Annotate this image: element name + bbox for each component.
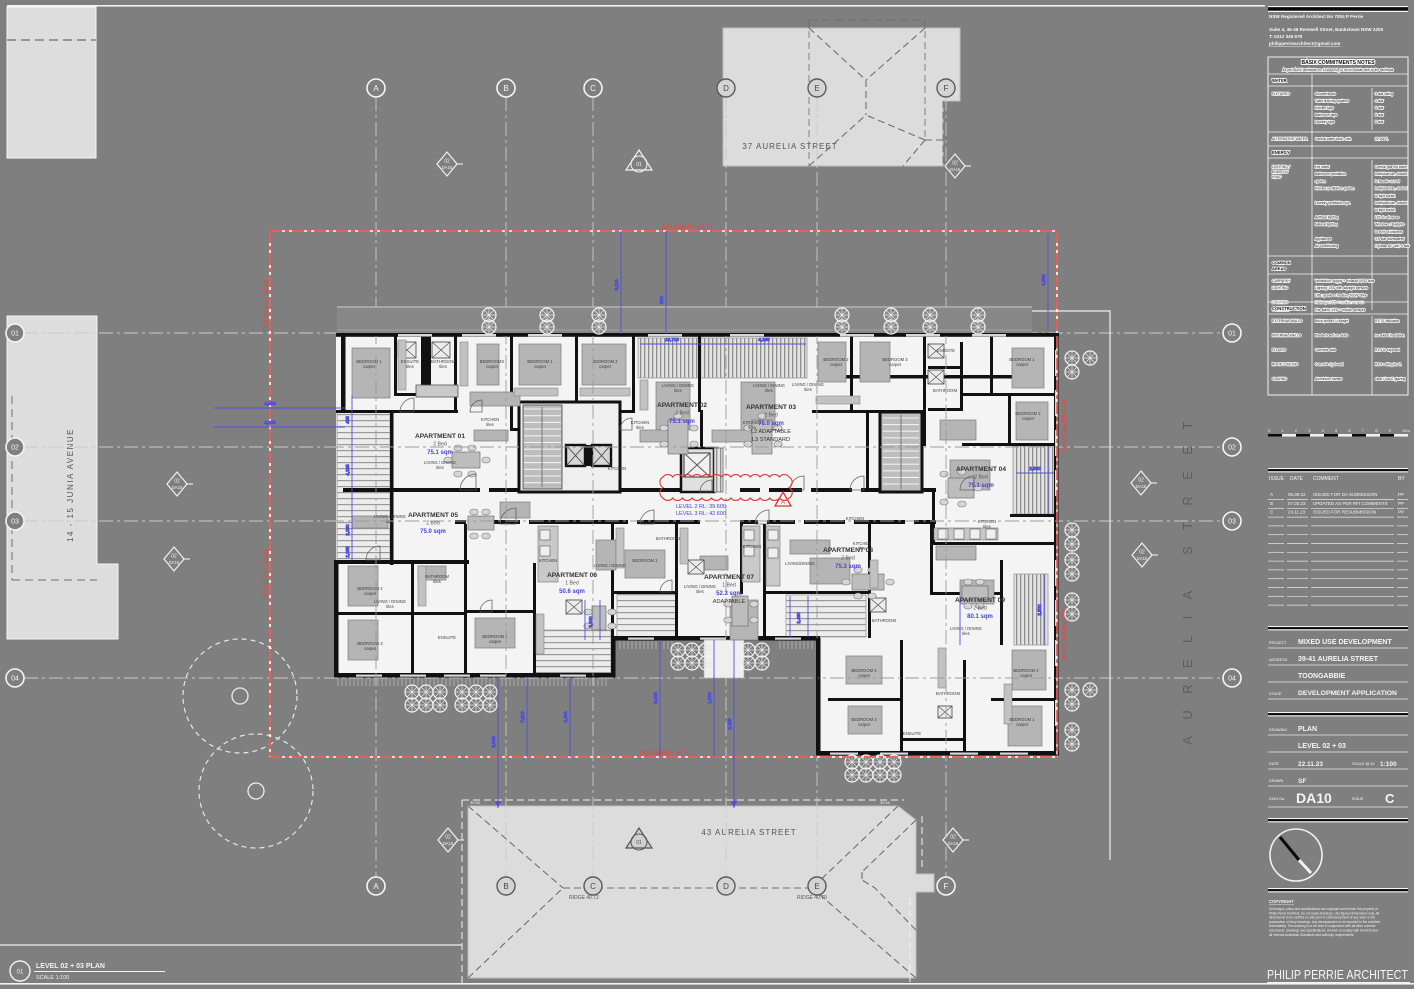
svg-text:tiles: tiles xyxy=(436,465,443,470)
svg-text:carpet: carpet xyxy=(1020,673,1032,678)
svg-text:37 AURELIA STREET: 37 AURELIA STREET xyxy=(742,142,837,151)
svg-text:500: 500 xyxy=(659,296,664,304)
svg-text:APARTMENT 09: APARTMENT 09 xyxy=(955,597,1005,604)
svg-text:2 Bed: 2 Bed xyxy=(974,475,988,481)
svg-text:Ventilation: supply + exhaust,: Ventilation: supply + exhaust, VSD fans xyxy=(1315,279,1375,283)
svg-text:2,420: 2,420 xyxy=(727,718,732,730)
svg-text:Bathroom taps: Bathroom taps xyxy=(1315,113,1337,117)
svg-text:D: D xyxy=(723,882,729,891)
svg-text:E: E xyxy=(814,882,819,891)
svg-text:PROJECT: PROJECT xyxy=(1269,641,1287,645)
svg-text:carpet: carpet xyxy=(599,364,611,369)
svg-text:75.0 sqm: 75.0 sqm xyxy=(420,529,446,535)
svg-text:LED to all areas: LED to all areas xyxy=(1375,215,1399,219)
svg-text:4,295: 4,295 xyxy=(345,464,350,476)
svg-text:APARTMENT 07: APARTMENT 07 xyxy=(704,574,754,581)
svg-text:3,300: 3,300 xyxy=(588,616,593,628)
svg-text:RIDGE 40.70: RIDGE 40.70 xyxy=(797,895,827,901)
svg-text:Lighting: LED with daylight se: Lighting: LED with daylight sensors xyxy=(1315,286,1368,290)
svg-text:BOUNDARY 30.48: BOUNDARY 30.48 xyxy=(1060,400,1066,451)
svg-text:philipperriearchitect@gmail.co: philipperriearchitect@gmail.com xyxy=(1269,41,1340,46)
svg-text:4 star: 4 star xyxy=(1375,99,1384,103)
svg-text:Concrete slab: Concrete slab xyxy=(1315,348,1336,352)
svg-text:DATE: DATE xyxy=(1290,476,1304,482)
svg-text:clear / low-E glazing: clear / low-E glazing xyxy=(1375,377,1405,381)
svg-text:KITCHEN: KITCHEN xyxy=(743,544,761,549)
svg-text:5,600: 5,600 xyxy=(491,736,496,748)
svg-text:Hot water: Hot water xyxy=(1315,165,1330,169)
svg-text:A: A xyxy=(1270,492,1273,497)
svg-text:carpet: carpet xyxy=(858,722,870,727)
svg-text:Showerheads: Showerheads xyxy=(1315,92,1336,96)
svg-text:3 star rating: 3 star rating xyxy=(1375,92,1393,96)
svg-text:DRAWING: DRAWING xyxy=(1269,728,1287,732)
svg-text:A: A xyxy=(373,882,379,891)
svg-text:tiles: tiles xyxy=(804,387,811,392)
svg-text:ISSUE: ISSUE xyxy=(1269,476,1285,482)
svg-text:B: B xyxy=(1270,501,1273,506)
svg-text:Laundry taps: Laundry taps xyxy=(1315,120,1335,124)
svg-text:80.1 sqm: 80.1 sqm xyxy=(967,614,993,620)
svg-text:75.3 sqm: 75.3 sqm xyxy=(835,564,861,570)
svg-text:Lifts: gearless traction, VVVF: Lifts: gearless traction, VVVF drive xyxy=(1315,293,1367,297)
svg-text:01: 01 xyxy=(17,970,24,976)
svg-text:ADAPTABLE: ADAPTABLE xyxy=(713,599,746,605)
svg-text:DATE: DATE xyxy=(1269,762,1279,766)
svg-text:FIXTURES: FIXTURES xyxy=(1272,92,1290,96)
svg-text:Air conditioning: Air conditioning xyxy=(1315,244,1338,248)
svg-text:3.5 star dishwasher: 3.5 star dishwasher xyxy=(1375,237,1405,241)
svg-text:B: B xyxy=(503,84,508,93)
svg-text:01: 01 xyxy=(1228,331,1236,338)
svg-text:2,285: 2,285 xyxy=(345,546,350,558)
svg-text:76.0 sqm: 76.0 sqm xyxy=(758,421,784,427)
svg-text:A: A xyxy=(373,84,379,93)
svg-text:04: 04 xyxy=(1228,676,1236,683)
svg-text:02: 02 xyxy=(1228,445,1236,452)
svg-text:AURELIA STREET: AURELIA STREET xyxy=(1180,405,1195,744)
svg-text:75.1 sqm: 75.1 sqm xyxy=(427,450,453,456)
svg-text:FLOORS: FLOORS xyxy=(1272,348,1287,352)
svg-text:COMMON: COMMON xyxy=(1272,260,1291,265)
svg-text:tiles: tiles xyxy=(386,604,393,609)
svg-text:01: 01 xyxy=(636,162,642,168)
svg-text:NSW Registered Architect No 70: NSW Registered Architect No 7004 P Perri… xyxy=(1269,14,1364,19)
svg-text:APARTMENT 06: APARTMENT 06 xyxy=(547,572,597,579)
svg-text:BATHROOM: BATHROOM xyxy=(656,536,680,541)
svg-text:22.11.23: 22.11.23 xyxy=(1298,761,1323,768)
svg-text:AREAS: AREAS xyxy=(1272,266,1286,271)
svg-text:ADDRESS: ADDRESS xyxy=(1269,658,1288,662)
svg-text:LIGHTING /: LIGHTING / xyxy=(1272,165,1290,169)
svg-text:02: 02 xyxy=(11,445,19,452)
svg-text:4,606: 4,606 xyxy=(264,401,276,406)
svg-text:Suite 4, 46-48 Restwell Street: Suite 4, 46-48 Restwell Street, Bankstow… xyxy=(1269,27,1384,32)
svg-text:PP: PP xyxy=(1398,492,1404,497)
svg-text:carpet: carpet xyxy=(1016,362,1028,367)
svg-text:LEVEL 2 RL: 39.600: LEVEL 2 RL: 39.600 xyxy=(676,504,726,510)
svg-text:39-41 AURELIA STREET: 39-41 AURELIA STREET xyxy=(1298,656,1379,663)
svg-text:1,000: 1,000 xyxy=(707,692,712,704)
svg-text:tiles: tiles xyxy=(386,519,393,524)
svg-text:E: E xyxy=(814,84,819,93)
svg-text:APARTMENT 03: APARTMENT 03 xyxy=(746,404,796,411)
svg-text:RIDGE 40.72: RIDGE 40.72 xyxy=(569,895,599,901)
svg-text:Central gas hot water: Central gas hot water xyxy=(1375,165,1408,169)
svg-text:5 star: 5 star xyxy=(1375,120,1384,124)
svg-text:ISSUED FOR RESUBMISSION: ISSUED FOR RESUBMISSION xyxy=(1313,510,1376,515)
svg-text:GLAZING: GLAZING xyxy=(1272,377,1287,381)
svg-text:ENERGY: ENERGY xyxy=(1272,150,1290,155)
svg-text:carpet: carpet xyxy=(889,362,901,367)
svg-text:43 AURELIA STREET: 43 AURELIA STREET xyxy=(701,828,796,837)
svg-text:SCALE 1:100: SCALE 1:100 xyxy=(36,975,69,981)
svg-text:1 Bed: 1 Bed xyxy=(565,581,579,587)
svg-text:carpet: carpet xyxy=(364,646,376,651)
svg-text:Individual fan, ducted: Individual fan, ducted xyxy=(1375,201,1407,205)
svg-text:APARTMENT 05: APARTMENT 05 xyxy=(408,512,458,519)
svg-text:D: D xyxy=(723,84,729,93)
svg-text:01: 01 xyxy=(636,840,642,846)
svg-text:MIXED USE DEVELOPMENT: MIXED USE DEVELOPMENT xyxy=(1298,639,1392,646)
svg-text:10m: 10m xyxy=(1402,428,1410,433)
svg-text:APARTMENT 04: APARTMENT 04 xyxy=(956,466,1006,473)
svg-text:07.03.23: 07.03.23 xyxy=(1288,501,1306,506)
svg-text:R3.0 ceiling insul.: R3.0 ceiling insul. xyxy=(1375,363,1402,367)
svg-text:T: 0412 345 678: T: 0412 345 678 xyxy=(1269,34,1303,39)
svg-text:to light switch: to light switch xyxy=(1375,194,1395,198)
svg-text:PHILIP PERRIE ARCHITECT: PHILIP PERRIE ARCHITECT xyxy=(1267,967,1408,982)
svg-text:carpet: carpet xyxy=(489,639,501,644)
svg-text:PP: PP xyxy=(1398,510,1404,515)
svg-text:KITCHEN: KITCHEN xyxy=(539,558,557,563)
svg-text:BATHROOM: BATHROOM xyxy=(936,691,960,696)
svg-text:BATHROOM: BATHROOM xyxy=(933,388,957,393)
svg-text:ISSUED FOR DA SUBMISSION: ISSUED FOR DA SUBMISSION xyxy=(1313,492,1377,497)
svg-text:all relevant Australian Standa: all relevant Australian Standards and au… xyxy=(1269,933,1355,937)
svg-text:1 Bed: 1 Bed xyxy=(722,583,736,589)
svg-text:CARPARK /: CARPARK / xyxy=(1272,279,1290,283)
svg-text:455: 455 xyxy=(345,416,350,424)
svg-text:BOUNDARY 30.48: BOUNDARY 30.48 xyxy=(1060,610,1066,661)
svg-text:Laundry ventilation sys.: Laundry ventilation sys. xyxy=(1315,201,1350,205)
svg-text:Central water tank - rain: Central water tank - rain xyxy=(1315,137,1351,141)
svg-text:14 - 15 JUNIA AVENUE: 14 - 15 JUNIA AVENUE xyxy=(66,428,75,542)
svg-text:TOONGABBIE: TOONGABBIE xyxy=(1298,673,1346,680)
svg-text:tiles: tiles xyxy=(486,422,493,427)
svg-text:Individual fan, ducted: Individual fan, ducted xyxy=(1375,187,1407,191)
svg-text:52.3 sqm: 52.3 sqm xyxy=(716,591,742,597)
svg-text:LIVING/DINING: LIVING/DINING xyxy=(785,561,815,566)
svg-text:COMMENT: COMMENT xyxy=(1313,476,1339,482)
svg-text:DA10: DA10 xyxy=(1296,790,1332,806)
svg-text:39.60: 39.60 xyxy=(470,800,481,805)
svg-text:Natural lighting: Natural lighting xyxy=(1315,223,1338,227)
svg-text:DEVELOPMENT APPLICATION: DEVELOPMENT APPLICATION xyxy=(1298,690,1397,697)
svg-text:2,460: 2,460 xyxy=(796,612,801,624)
svg-text:Windows / skylights: Windows / skylights xyxy=(1375,223,1405,227)
svg-text:APARTMENT 08: APARTMENT 08 xyxy=(823,547,873,554)
svg-text:75.1 sqm: 75.1 sqm xyxy=(968,483,994,489)
svg-text:tiles: tiles xyxy=(696,589,703,594)
svg-text:LIGHTING: LIGHTING xyxy=(1272,301,1288,305)
svg-text:4,400: 4,400 xyxy=(563,711,568,723)
svg-text:BY: BY xyxy=(1398,476,1405,482)
svg-text:carpet: carpet xyxy=(486,364,498,369)
svg-text:50.6 sqm: 50.6 sqm xyxy=(559,589,585,595)
svg-text:BASIX COMMITMENTS NOTES: BASIX COMMITMENTS NOTES xyxy=(1301,60,1375,66)
svg-text:DWG No.: DWG No. xyxy=(1269,797,1285,801)
svg-text:03: 03 xyxy=(11,519,19,526)
svg-text:Concrete / p.board: Concrete / p.board xyxy=(1315,363,1343,367)
svg-text:2,500: 2,500 xyxy=(1037,604,1042,616)
svg-text:carpet: carpet xyxy=(1022,416,1034,421)
svg-text:Brick veneer / l.weight: Brick veneer / l.weight xyxy=(1315,319,1348,323)
svg-text:BOUNDARY 30.48: BOUNDARY 30.48 xyxy=(264,549,270,600)
svg-text:L2 ADAPTABLE: L2 ADAPTABLE xyxy=(751,429,791,435)
svg-text:BOUNDARY 45.72: BOUNDARY 45.72 xyxy=(662,225,713,231)
svg-text:INTERNAL WALLS: INTERNAL WALLS xyxy=(1272,334,1302,338)
svg-text:Hallways: LED + motion sensors: Hallways: LED + motion sensors xyxy=(1315,301,1364,305)
svg-text:Appliances: Appliances xyxy=(1315,237,1332,241)
svg-text:C: C xyxy=(1385,791,1395,806)
svg-text:LEVEL 02 + 03 PLAN: LEVEL 02 + 03 PLAN xyxy=(36,963,105,970)
svg-text:ROOF / CEILING: ROOF / CEILING xyxy=(1272,363,1299,367)
svg-text:39.60: 39.60 xyxy=(880,800,891,805)
svg-text:2 Bed: 2 Bed xyxy=(841,556,855,562)
svg-text:KITCHEN: KITCHEN xyxy=(846,516,864,521)
svg-text:10,710: 10,710 xyxy=(665,337,679,342)
svg-text:UPDATED AS PER RFI COMMENTS: UPDATED AS PER RFI COMMENTS xyxy=(1313,501,1388,506)
svg-text:system: system xyxy=(1315,179,1326,183)
svg-text:2 Bed: 2 Bed xyxy=(764,413,778,419)
svg-text:5 star: 5 star xyxy=(1375,113,1384,117)
svg-text:carpet: carpet xyxy=(1016,722,1028,727)
svg-text:SF: SF xyxy=(1298,778,1306,785)
svg-text:Kitchen ventilation system: Kitchen ventilation system xyxy=(1315,187,1354,191)
svg-text:PP: PP xyxy=(1398,501,1404,506)
svg-text:LEVEL 3 RL: 42.600: LEVEL 3 RL: 42.600 xyxy=(676,511,726,517)
svg-text:Fire stairs: LED + motion sens: Fire stairs: LED + motion sensors xyxy=(1315,308,1366,312)
svg-text:no added insulation: no added insulation xyxy=(1375,334,1405,338)
svg-text:BOUNDARY 30.48: BOUNDARY 30.48 xyxy=(264,279,270,330)
svg-text:Plasterboard on studs: Plasterboard on studs xyxy=(1315,334,1348,338)
svg-text:01: 01 xyxy=(11,331,19,338)
svg-text:APARTMENT 02: APARTMENT 02 xyxy=(657,402,707,409)
svg-text:75.1 sqm: 75.1 sqm xyxy=(669,419,695,425)
svg-text:A: A xyxy=(781,500,785,506)
svg-text:to light switch: to light switch xyxy=(1375,208,1395,212)
svg-text:HVAC: HVAC xyxy=(1272,175,1282,179)
svg-text:WATER: WATER xyxy=(1272,78,1287,83)
svg-text:ENERGY /: ENERGY / xyxy=(1272,170,1288,174)
svg-text:1,500: 1,500 xyxy=(1041,274,1046,286)
svg-text:tiles: tiles xyxy=(439,364,446,369)
svg-text:CONSTRUCTION: CONSTRUCTION xyxy=(1272,306,1306,311)
svg-text:tiles: tiles xyxy=(983,524,990,529)
svg-text:F: F xyxy=(944,84,949,93)
svg-text:SCALE @ A1: SCALE @ A1 xyxy=(1352,762,1375,766)
svg-text:24.11.23: 24.11.23 xyxy=(1288,510,1306,515)
svg-text:ENSUITE: ENSUITE xyxy=(903,731,921,736)
svg-text:C: C xyxy=(590,882,596,891)
svg-text:ISSUE: ISSUE xyxy=(1352,797,1364,801)
svg-text:carpet: carpet xyxy=(534,364,546,369)
svg-text:Bathroom ventilation: Bathroom ventilation xyxy=(1315,172,1346,176)
svg-text:R1.70 insulation: R1.70 insulation xyxy=(1375,319,1399,323)
svg-text:C: C xyxy=(590,84,596,93)
svg-text:ENSUITE: ENSUITE xyxy=(438,635,456,640)
svg-text:EXTERNAL WALLS: EXTERNAL WALLS xyxy=(1272,319,1303,323)
svg-text:3,110: 3,110 xyxy=(614,279,619,290)
svg-text:STAGE: STAGE xyxy=(1269,692,1282,696)
svg-text:LEVEL 02 + 03: LEVEL 02 + 03 xyxy=(1298,743,1346,750)
svg-text:R1.0 to exposed: R1.0 to exposed xyxy=(1375,348,1400,352)
svg-text:1:100: 1:100 xyxy=(1380,761,1397,768)
svg-text:20,000 L: 20,000 L xyxy=(1375,137,1388,141)
svg-text:tiles: tiles xyxy=(765,388,772,393)
svg-text:Toilet flushing systems: Toilet flushing systems xyxy=(1315,99,1349,103)
svg-text:9,000: 9,000 xyxy=(653,692,658,704)
svg-text:APARTMENT 01: APARTMENT 01 xyxy=(415,433,465,440)
svg-text:tiles: tiles xyxy=(406,364,413,369)
svg-text:to facade or roof: to facade or roof xyxy=(1375,179,1400,183)
svg-text:COPYRIGHT: COPYRIGHT xyxy=(1269,899,1294,904)
svg-text:PLAN: PLAN xyxy=(1298,726,1317,733)
svg-text:Individual fan, ducted: Individual fan, ducted xyxy=(1375,172,1407,176)
svg-text:1-phase AC unit; 4 star: 1-phase AC unit; 4 star xyxy=(1375,244,1410,248)
svg-text:5 star: 5 star xyxy=(1375,106,1384,110)
svg-text:carpet: carpet xyxy=(364,591,376,596)
svg-text:B: B xyxy=(503,882,508,891)
svg-text:tiles: tiles xyxy=(433,579,440,584)
svg-text:Kitchen taps: Kitchen taps xyxy=(1315,106,1334,110)
svg-text:As per BASIX certificate no. 1: As per BASIX certificate no. 1245632M_03… xyxy=(1282,68,1393,72)
svg-text:ALTERNATIVE WATER: ALTERNATIVE WATER xyxy=(1272,137,1308,141)
svg-text:2,280: 2,280 xyxy=(345,524,350,536)
svg-text:04: 04 xyxy=(11,676,19,683)
svg-text:BATHROOM: BATHROOM xyxy=(872,618,896,623)
svg-text:7,600: 7,600 xyxy=(520,711,525,723)
svg-text:LIGHTING: LIGHTING xyxy=(1272,286,1288,290)
svg-text:BEDROOM 1: BEDROOM 1 xyxy=(632,558,658,563)
svg-text:tiles: tiles xyxy=(636,425,643,430)
svg-text:tiles: tiles xyxy=(962,631,969,636)
svg-text:carpet: carpet xyxy=(858,673,870,678)
svg-text:LIVING / DINING: LIVING / DINING xyxy=(594,563,626,568)
svg-text:4,000: 4,000 xyxy=(264,420,276,425)
svg-text:F: F xyxy=(944,882,949,891)
svg-text:BOUNDARY 45.72: BOUNDARY 45.72 xyxy=(640,751,691,757)
svg-text:Artificial lighting: Artificial lighting xyxy=(1315,215,1339,219)
svg-text:4,198: 4,198 xyxy=(758,337,770,342)
svg-text:DRAWN: DRAWN xyxy=(1269,779,1283,783)
svg-text:2 Bed: 2 Bed xyxy=(973,606,987,612)
svg-text:Aluminium frames: Aluminium frames xyxy=(1315,377,1342,381)
svg-text:carpet: carpet xyxy=(830,362,842,367)
svg-text:05.08.22: 05.08.22 xyxy=(1288,492,1306,497)
svg-text:L3 STANDARD: L3 STANDARD xyxy=(752,437,790,443)
svg-text:KITCHEN: KITCHEN xyxy=(608,466,626,471)
svg-text:03: 03 xyxy=(1228,519,1236,526)
svg-text:2 Bed: 2 Bed xyxy=(675,411,689,417)
svg-text:to 90% of kitchens: to 90% of kitchens xyxy=(1375,230,1403,234)
svg-text:carpet: carpet xyxy=(363,364,375,369)
svg-text:2,500: 2,500 xyxy=(1029,466,1041,471)
svg-text:tiles: tiles xyxy=(674,388,681,393)
